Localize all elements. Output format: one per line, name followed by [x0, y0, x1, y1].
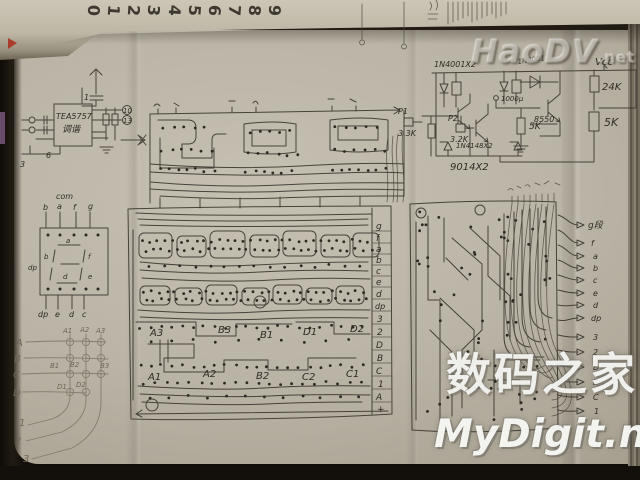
haodv-tld: .net: [598, 49, 636, 67]
part-label-b1: B1: [260, 330, 273, 341]
connector-label: 1: [378, 380, 384, 390]
connector-label: 3: [377, 315, 383, 325]
haodv-text: HaoDV: [472, 33, 599, 71]
display-board-pcb: [150, 99, 404, 208]
site-watermark-chinese: 数码之家: [446, 352, 638, 397]
tuner-out-10: 10: [123, 107, 132, 115]
matrix-row-c: C: [13, 370, 20, 381]
segment-e-label: e: [88, 273, 92, 281]
haodv-embossed-watermark: HaoDV.net: [472, 33, 636, 71]
schematic-to-pcb-wires: [387, 132, 404, 202]
tuner-schematic: TEA5757 调谐 1 6 3 10 13: [20, 69, 146, 169]
plug-p1-label: P1: [398, 107, 408, 116]
connector-label: D: [376, 341, 383, 351]
display-pin-a: a: [57, 202, 62, 211]
matrix-head-a1: A1: [62, 327, 72, 335]
display-pin-c: c: [82, 310, 87, 319]
display-pinout: com b a f g a b f d e dp dp e d c: [28, 192, 108, 319]
connector-label: dp: [375, 302, 385, 311]
matrix-num-3: 3: [23, 454, 29, 465]
output-label: c: [593, 276, 598, 285]
transistor-8550-label: 8550: [534, 115, 554, 124]
connector-label: c: [376, 267, 381, 277]
output-label: 3: [593, 333, 598, 342]
display-pin-f: f: [73, 203, 77, 212]
part-label-a1: A1: [147, 372, 161, 383]
main-pcb: g f a b c e d dp 3 2 D B C 1 A + A3 B3 B…: [128, 125, 392, 419]
transistor-9014-label: 9014X2: [450, 162, 489, 173]
matrix-num-2: 2: [15, 436, 21, 447]
part-label-b2: B2: [256, 371, 269, 382]
part-label-a2: A2: [202, 369, 216, 380]
output-title: g段: [588, 220, 604, 231]
diode-pair-label: 1N4001X2: [434, 60, 476, 69]
plug-p2-label: P2: [448, 114, 458, 123]
segment-d-label: d: [63, 273, 68, 281]
key-matrix: A B C D A1 A2 A3 B1 B2 B3 D1 D2 1 2 3: [13, 326, 109, 465]
tuner-out-13: 13: [123, 117, 132, 125]
tuner-pin-6: 6: [46, 151, 51, 160]
resistor-5k-right-label: 5K: [604, 116, 619, 129]
segment-dp-label: dp: [28, 264, 37, 272]
tuner-chip-subtitle: 调谐: [62, 124, 82, 135]
matrix-label-b2: B2: [70, 361, 80, 369]
tuner-pin-1: 1: [84, 93, 89, 102]
connector-label: b: [376, 256, 382, 266]
driver-schematic: 1N4001X2 1N4001 Vcc 24K 5K 5K 8550 1000μ…: [387, 54, 636, 202]
segment-b-label: b: [44, 253, 49, 261]
site-watermark-english: MyDigit.net: [434, 415, 640, 454]
output-label: dp: [591, 314, 601, 323]
resistor-p1-value: 3.3K: [398, 129, 417, 138]
matrix-label-b1: B1: [50, 362, 59, 370]
connector-label: B: [377, 354, 383, 364]
output-label: a: [593, 252, 598, 261]
part-label-c2: C2: [302, 372, 315, 383]
connector-label: f: [376, 234, 381, 244]
connector-label: a: [376, 245, 382, 255]
display-pin-g: g: [88, 202, 93, 211]
cap-1000u-label: 1000μ: [501, 95, 524, 103]
matrix-row-b: B: [14, 354, 21, 365]
matrix-label-d2: D2: [76, 381, 86, 389]
output-label: f: [591, 239, 595, 248]
matrix-head-a2: A2: [79, 326, 90, 334]
photo-of-hand-drawn-schematic: 0 1 2 3 4 5 6 7 8 9: [0, 0, 640, 480]
resistor-24k-label: 24K: [602, 82, 623, 93]
matrix-row-a: A: [15, 338, 23, 349]
matrix-row-d: D: [13, 388, 21, 399]
matrix-num-1: 1: [19, 418, 25, 429]
diode-4148-label: 1N4148X2: [456, 142, 493, 150]
matrix-label-d1: D1: [57, 383, 67, 391]
tuner-pin-3: 3: [20, 160, 25, 169]
output-label: d: [593, 301, 599, 310]
matrix-label-b3: B3: [100, 362, 109, 370]
part-label-a3: A3: [149, 328, 163, 339]
tuner-chip-label: TEA5757: [56, 112, 93, 121]
connector-label: 2: [377, 328, 383, 338]
connector-label: +: [377, 405, 385, 415]
connector-label: C: [376, 367, 383, 377]
connector-label: g: [376, 222, 382, 232]
segment-f-label: f: [88, 253, 92, 261]
connector-label: A: [375, 393, 382, 403]
display-pin-e: e: [55, 310, 60, 319]
connector-label: d: [376, 290, 382, 300]
ink-drawing-layer: TEA5757 调谐 1 6 3 10 13: [0, 0, 640, 480]
display-pin-d: d: [69, 310, 75, 319]
display-pin-dp: dp: [38, 310, 48, 319]
part-label-c1: C1: [346, 369, 359, 380]
display-com-label: com: [56, 192, 73, 201]
display-pin-b: b: [43, 203, 48, 212]
output-label: e: [593, 289, 598, 298]
segment-a-label: a: [66, 237, 70, 245]
connector-label: e: [376, 278, 382, 288]
part-label-b3: B3: [218, 325, 231, 336]
matrix-head-a3: A3: [95, 327, 105, 335]
output-label: b: [593, 264, 598, 273]
